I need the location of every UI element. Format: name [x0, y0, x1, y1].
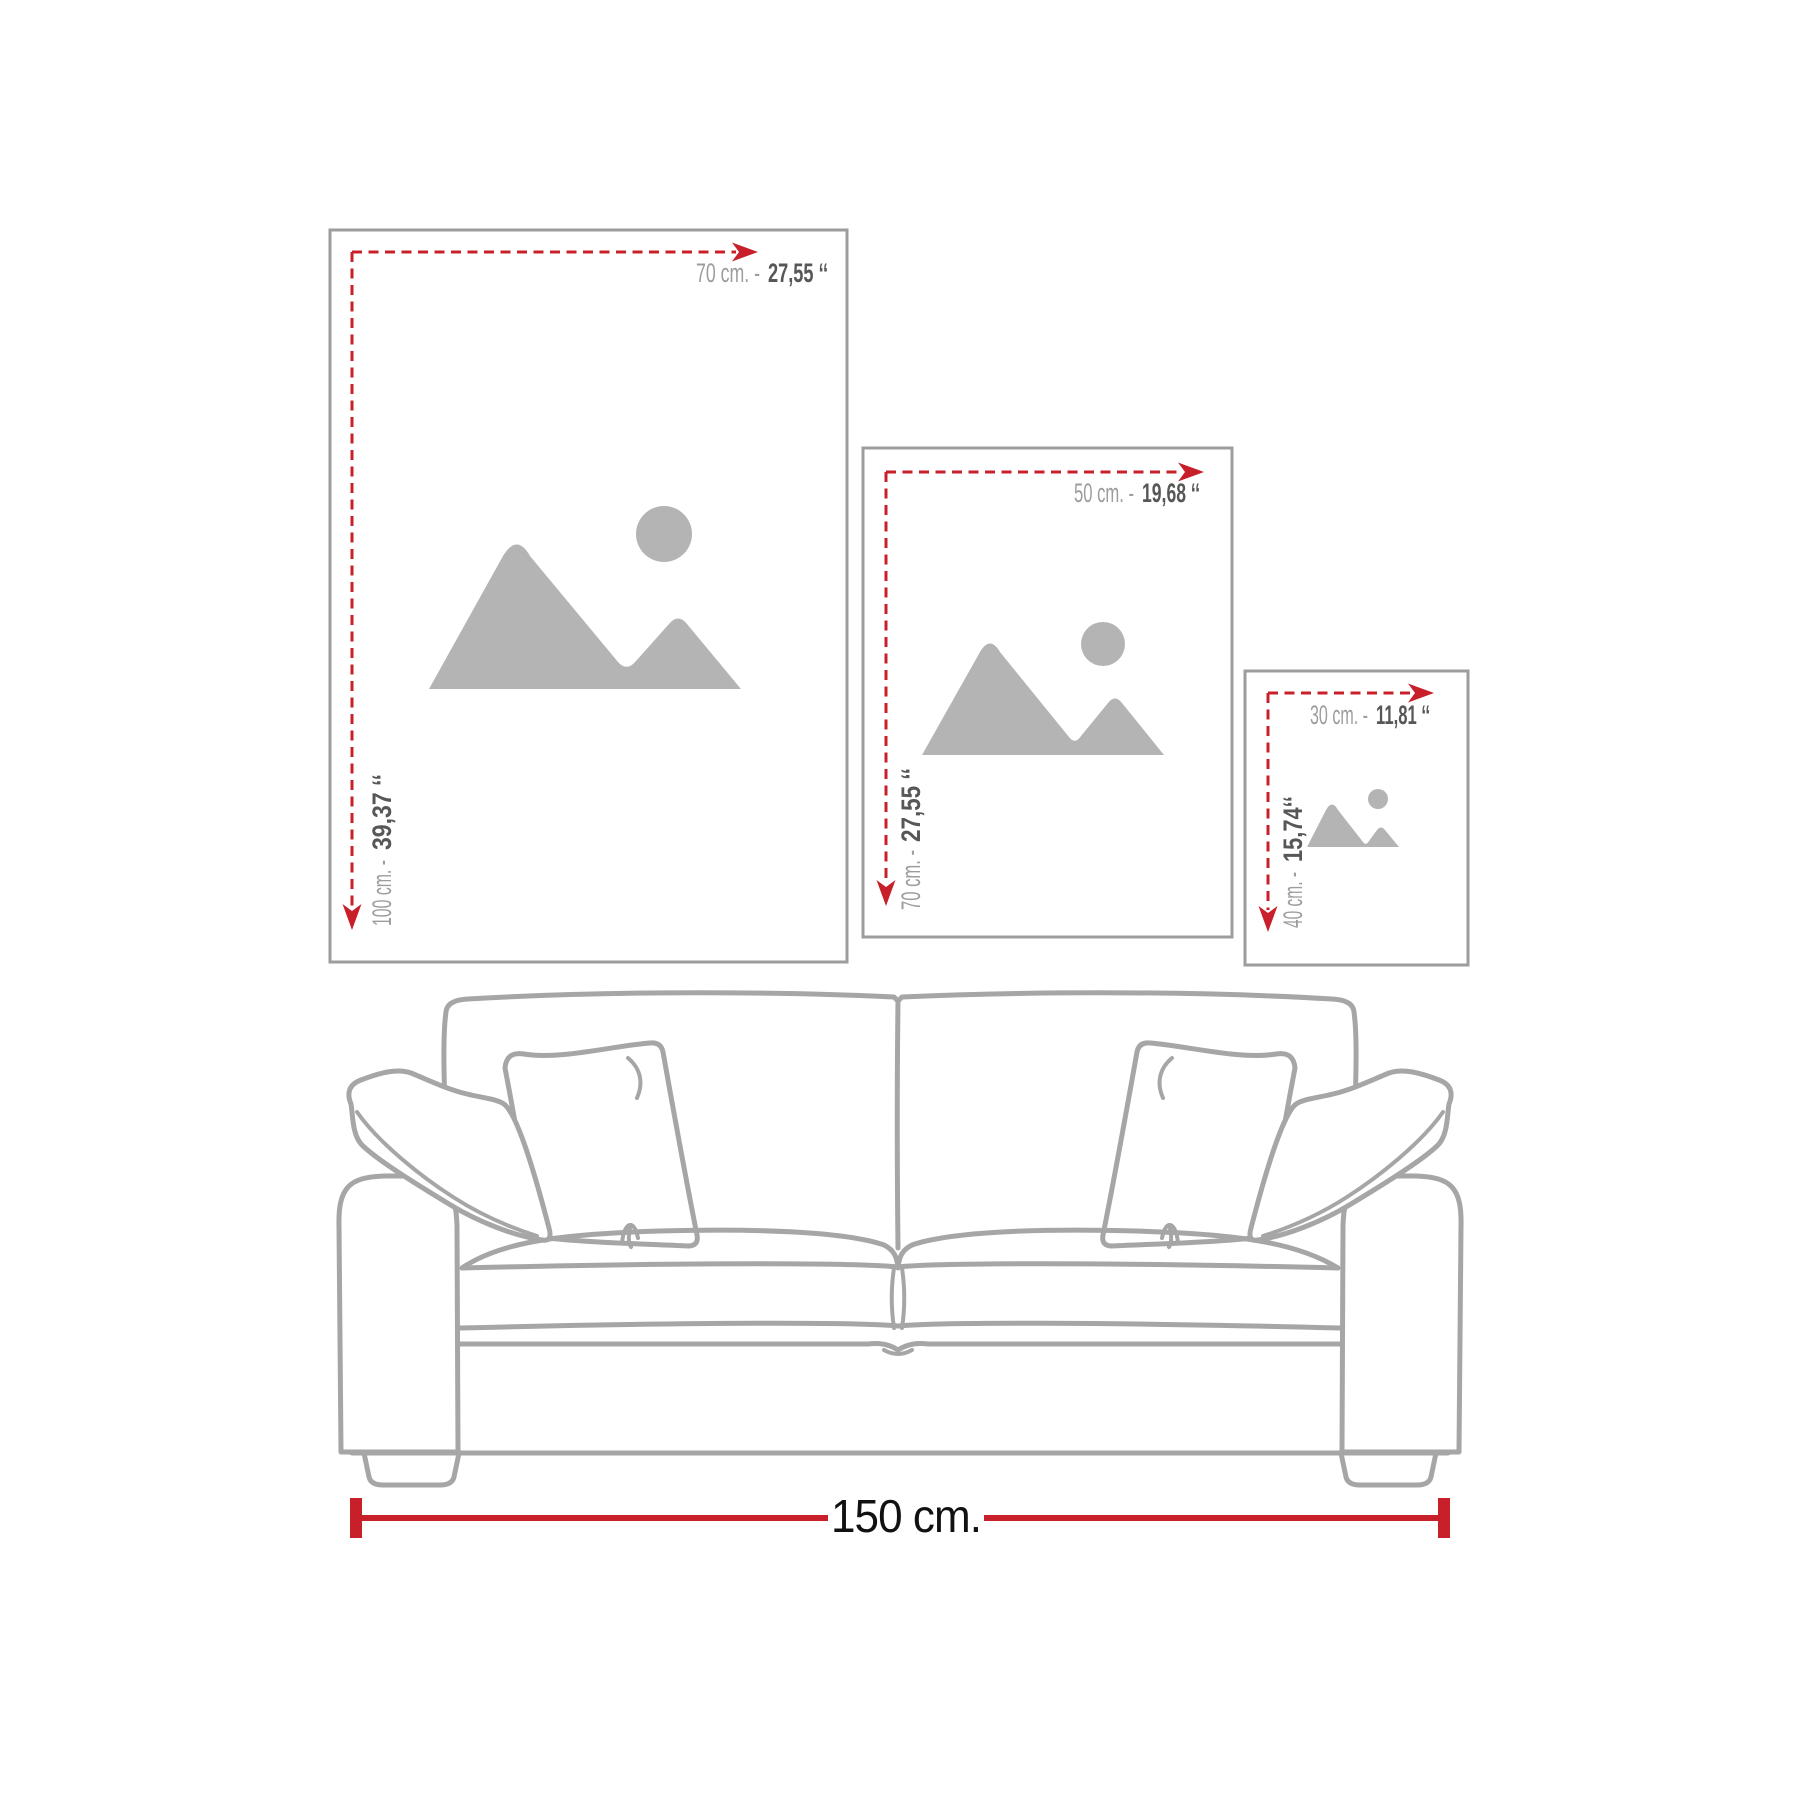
frame-medium-width-label-in: 19,68 ‘‘	[1142, 478, 1200, 508]
poster-frame-medium: 50 cm. - 19,68 ‘‘ 70 cm. - 27,55 ‘‘	[863, 448, 1232, 937]
frame-medium-width-label-cm: 50 cm. -	[1074, 478, 1134, 508]
sofa-side-assembly	[339, 1071, 550, 1485]
sofa-foot	[364, 1453, 459, 1485]
sofa-width-label: 150 cm.	[831, 1490, 981, 1542]
image-placeholder-sun-icon	[1368, 789, 1388, 809]
frame-large-width-label-in: 27,55 ‘‘	[768, 258, 828, 288]
frame-medium-height-label-in: 27,55 ‘‘	[896, 768, 926, 842]
poster-frame-small: 30 cm. - 11,81 ‘‘ 40 cm. - 15,74‘‘	[1245, 671, 1468, 965]
frame-large-width-label-cm: 70 cm. -	[696, 258, 760, 288]
sofa-arm	[339, 1176, 458, 1452]
sofa-seat-front-bottom-edge	[460, 1323, 1340, 1328]
sofa-backrest-center-seam	[897, 1001, 898, 1248]
frame-small-height-label-cm: 40 cm. -	[1278, 872, 1308, 928]
frame-large-height-label-cm: 100 cm. -	[367, 860, 397, 926]
frame-small-width-label-in: 11,81 ‘‘	[1376, 700, 1430, 730]
frame-small-height-label-in: 15,74‘‘	[1278, 796, 1308, 862]
frame-large-height-label-in: 39,37 ‘‘	[367, 774, 397, 850]
poster-frame-large: 70 cm. - 27,55 ‘‘ 100 cm. - 39,37 ‘‘	[330, 230, 847, 962]
measure-bar-left	[362, 1515, 828, 1521]
sofa-seat-front-top-edge	[462, 1264, 1338, 1268]
measure-end-cap-right	[1438, 1498, 1450, 1538]
frame-medium-height-label-cm: 70 cm. -	[896, 850, 926, 910]
measure-end-cap-left	[350, 1498, 362, 1538]
image-placeholder-sun-icon	[636, 506, 692, 562]
frame-small-width-label-cm: 30 cm. -	[1310, 700, 1368, 730]
frame-large-border	[330, 230, 847, 962]
poster-size-guide-diagram: 70 cm. - 27,55 ‘‘ 100 cm. - 39,37 ‘‘ 50 …	[0, 0, 1800, 1800]
sofa-cushion-gap	[892, 1268, 905, 1328]
sofa-base-piping	[458, 1343, 1342, 1350]
sofa-illustration	[339, 993, 1461, 1485]
measure-bar-right	[984, 1515, 1438, 1521]
sofa-width-measure: 150 cm.	[350, 1490, 1450, 1542]
image-placeholder-sun-icon	[1081, 622, 1125, 666]
